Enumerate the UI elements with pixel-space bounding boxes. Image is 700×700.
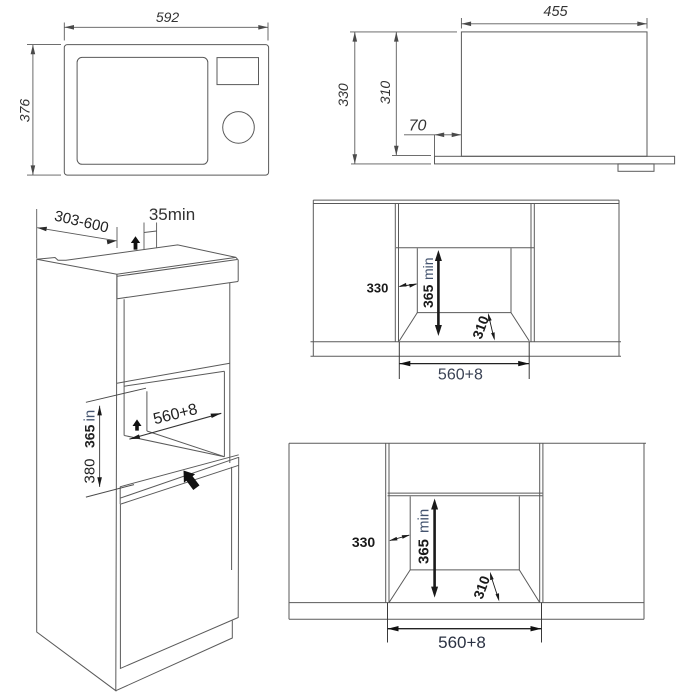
svg-text:330: 330 [335, 83, 351, 107]
svg-text:70: 70 [409, 118, 427, 135]
svg-text:310: 310 [470, 573, 493, 601]
svg-text:330: 330 [352, 534, 376, 550]
svg-text:in: in [82, 410, 99, 422]
svg-text:380: 380 [82, 458, 99, 483]
svg-text:376: 376 [17, 99, 33, 123]
svg-text:560+8: 560+8 [438, 367, 483, 384]
svg-text:455: 455 [543, 4, 568, 20]
svg-text:560+8: 560+8 [438, 633, 486, 652]
svg-text:365: 365 [420, 284, 436, 308]
svg-text:303-600: 303-600 [53, 208, 110, 237]
svg-text:min: min [416, 509, 433, 533]
svg-text:592: 592 [156, 9, 180, 25]
svg-text:310: 310 [377, 81, 393, 105]
svg-text:560+8: 560+8 [152, 401, 200, 428]
svg-text:35min: 35min [149, 205, 195, 224]
svg-text:365: 365 [82, 424, 98, 448]
svg-text:330: 330 [367, 281, 389, 296]
svg-text:min: min [420, 257, 436, 280]
svg-text:365: 365 [416, 539, 433, 564]
